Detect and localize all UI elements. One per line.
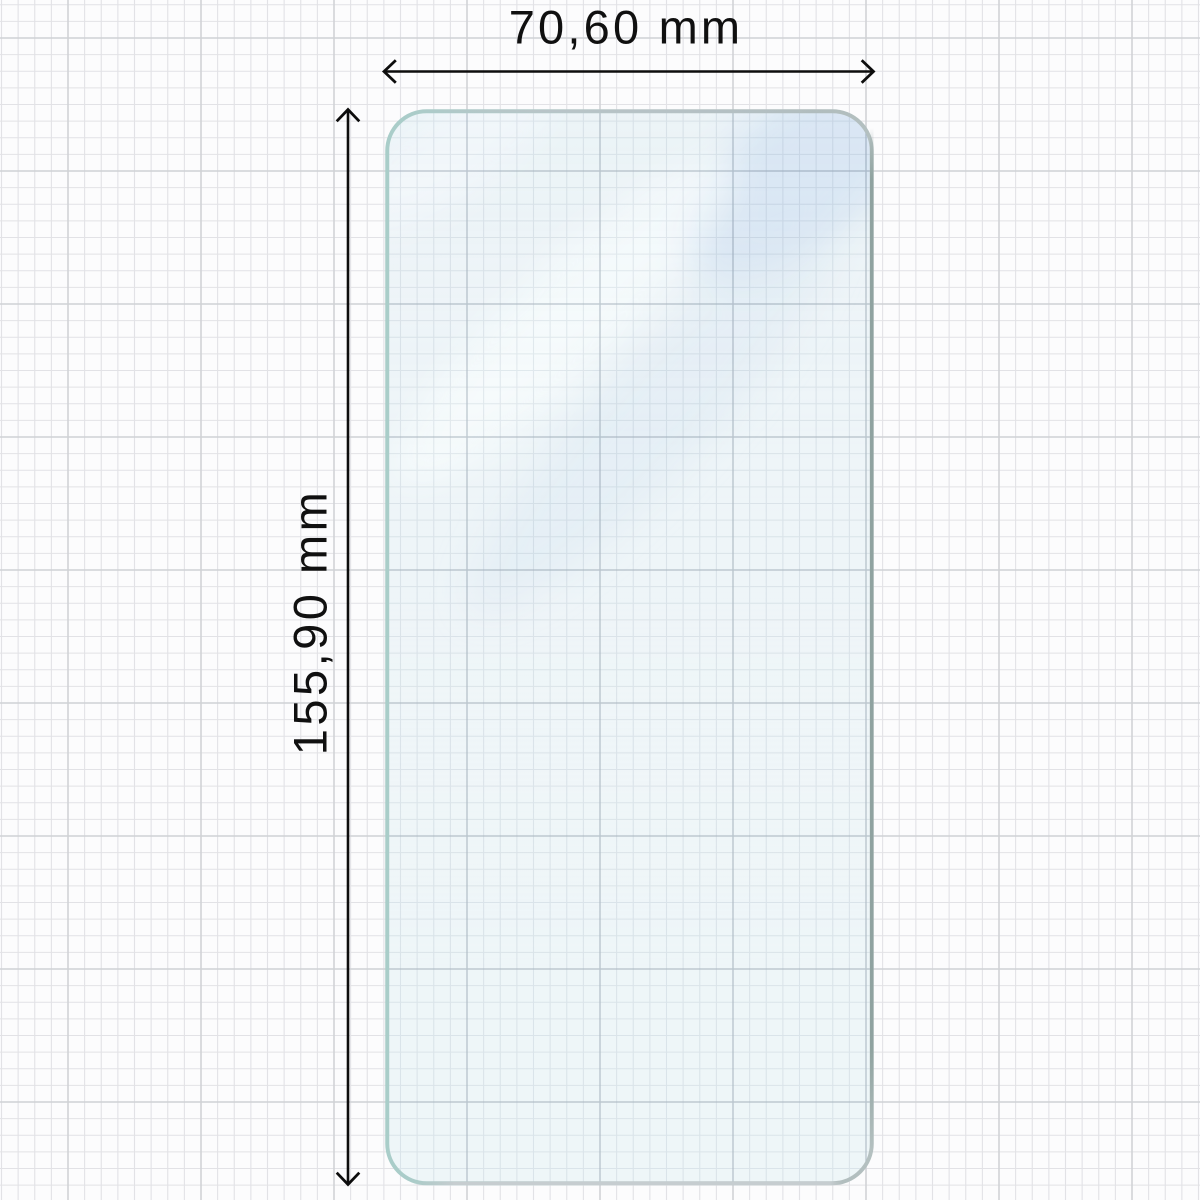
svg-text:155,90 mm: 155,90 mm — [284, 489, 337, 756]
svg-text:70,60 mm: 70,60 mm — [509, 1, 744, 54]
